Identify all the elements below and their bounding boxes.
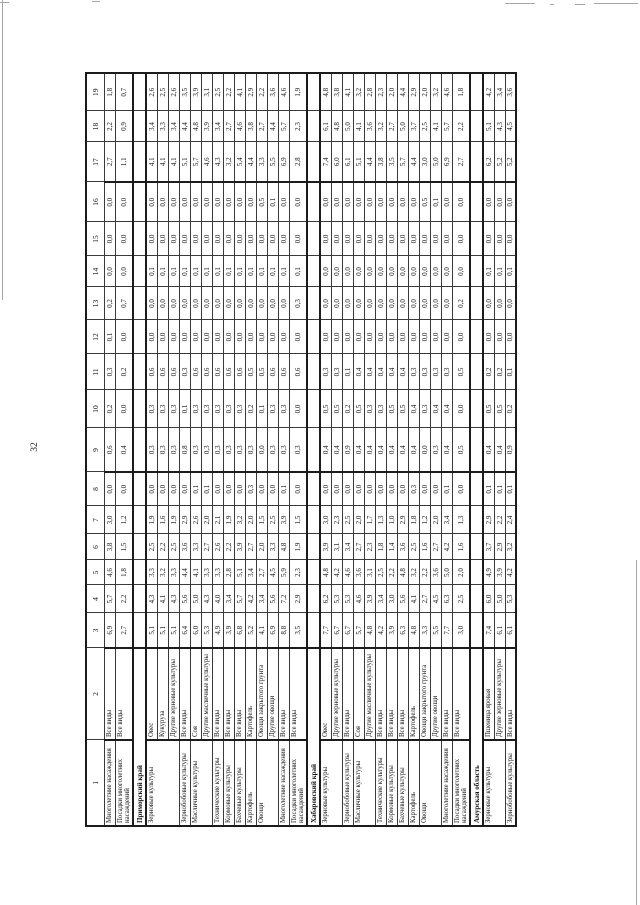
value-cell: 0,1 (342, 354, 353, 390)
value-cell: 3,0 (419, 142, 430, 182)
subcategory-label-cell: Все виды (115, 648, 133, 740)
value-cell: 0,0 (115, 256, 133, 287)
empty-value-cell (470, 320, 483, 354)
value-cell: 0,0 (201, 287, 212, 320)
value-cell: 0,6 (168, 354, 179, 390)
value-cell: 0,0 (419, 256, 430, 287)
value-cell: 1,5 (256, 506, 267, 534)
empty-value-cell (307, 390, 320, 428)
table-row: Другие зерновые культуры5,14,33,32,51,90… (168, 73, 179, 826)
statistics-table: 12345678910111213141516171819 Многолетни… (85, 72, 517, 827)
value-cell: 0,1 (157, 256, 168, 287)
category-label-cell: Бахчевые культуры (234, 740, 245, 826)
value-cell: 0,4 (408, 390, 419, 428)
value-cell: 4,2 (483, 73, 494, 111)
value-cell: 0,0 (494, 222, 505, 256)
value-cell: 5,7 (441, 111, 452, 142)
value-cell: 6,9 (267, 613, 278, 648)
table-row: Многолетние насажденияВсе виды8,87,25,94… (278, 73, 289, 826)
value-cell: 2,7 (115, 613, 133, 648)
table-row: Другие овощи5,54,53,62,72,00,00,30,40,30… (430, 73, 441, 826)
value-cell: 0,0 (353, 256, 364, 287)
value-cell: 0,3 (419, 354, 430, 390)
value-cell: 0,3 (331, 354, 342, 390)
value-cell: 3,8 (104, 534, 115, 560)
value-cell: 0,1 (289, 256, 307, 287)
value-cell: 1,8 (104, 73, 115, 111)
empty-value-cell (470, 472, 483, 506)
table-row: Зерновые культурыОвес5,14,33,32,51,90,00… (146, 73, 157, 826)
value-cell: 2,2 (256, 73, 267, 111)
value-cell: 4,3 (201, 585, 212, 613)
value-cell: 3,2 (375, 111, 386, 142)
value-cell: 4,6 (104, 560, 115, 585)
value-cell: 0,0 (289, 320, 307, 354)
value-cell: 2,2 (494, 506, 505, 534)
value-cell: 0,0 (179, 320, 190, 354)
value-cell: 0,0 (223, 320, 234, 354)
value-cell: 2,9 (397, 506, 408, 534)
value-cell: 2,7 (452, 142, 470, 182)
value-cell: 3,5 (289, 613, 307, 648)
value-cell: 0,5 (353, 390, 364, 428)
empty-value-cell (133, 222, 146, 256)
value-cell: 2,7 (419, 585, 430, 613)
value-cell: 0,4 (494, 428, 505, 472)
value-cell: 5,3 (331, 585, 342, 613)
value-cell: 0,0 (397, 287, 408, 320)
value-cell: 0,0 (256, 222, 267, 256)
value-cell: 0,9 (505, 428, 516, 472)
value-cell: 4,1 (157, 142, 168, 182)
value-cell: 0,0 (201, 222, 212, 256)
value-cell: 4,1 (190, 560, 201, 585)
value-cell: 0,3 (104, 354, 115, 390)
value-cell: 0,4 (353, 428, 364, 472)
value-cell: 3,0 (386, 585, 397, 613)
table-row: Бахчевые культурыВсе виды6,85,75,13,93,2… (234, 73, 245, 826)
value-cell: 1,9 (146, 506, 157, 534)
value-cell: 0,0 (256, 428, 267, 472)
empty-value-cell (307, 222, 320, 256)
value-cell: 0,0 (419, 428, 430, 472)
value-cell: 4,1 (234, 73, 245, 111)
scan-artifact-line (636, 560, 637, 905)
value-cell: 0,2 (505, 390, 516, 428)
value-cell: 0,1 (267, 182, 278, 222)
value-cell: 0,4 (441, 428, 452, 472)
value-cell: 1,8 (115, 560, 133, 585)
value-cell: 6,9 (104, 613, 115, 648)
value-cell: 4,8 (331, 111, 342, 142)
value-cell: 0,1 (201, 472, 212, 506)
empty-value-cell (133, 142, 146, 182)
value-cell: 0,0 (245, 182, 256, 222)
value-cell: 3,3 (212, 560, 223, 585)
value-cell: 2,7 (245, 534, 256, 560)
value-cell: 6,8 (234, 613, 245, 648)
value-cell: 4,8 (397, 560, 408, 585)
value-cell: 2,3 (289, 560, 307, 585)
value-cell: 0,0 (494, 287, 505, 320)
value-cell: 0,2 (104, 390, 115, 428)
value-cell: 0,3 (408, 354, 419, 390)
value-cell: 5,6 (267, 585, 278, 613)
subcategory-label-cell: Овес (320, 648, 331, 740)
value-cell: 2,3 (364, 534, 375, 560)
value-cell: 6,4 (179, 613, 190, 648)
value-cell: 0,3 (146, 428, 157, 472)
value-cell: 2,7 (430, 534, 441, 560)
value-cell: 1,8 (452, 73, 470, 111)
column-number-header: 5 (86, 560, 104, 585)
value-cell: 0,0 (320, 287, 331, 320)
value-cell: 3,7 (408, 111, 419, 142)
value-cell: 0,0 (441, 320, 452, 354)
table-row: Посадки многолетних насажденийВсе виды3,… (289, 73, 307, 826)
value-cell: 0,6 (201, 354, 212, 390)
value-cell: 5,2 (505, 142, 516, 182)
subcategory-label-cell: Овощи закрытого грунта (419, 648, 430, 740)
value-cell: 2,6 (212, 534, 223, 560)
empty-value-cell (307, 560, 320, 585)
empty-value-cell (470, 585, 483, 613)
value-cell: 4,1 (146, 142, 157, 182)
column-number-header: 7 (86, 506, 104, 534)
value-cell: 5,2 (245, 613, 256, 648)
value-cell: 0,0 (256, 320, 267, 354)
value-cell: 0,4 (364, 354, 375, 390)
category-label-cell: Многолетние насаждения (441, 740, 452, 826)
region-section-label: Хабаровский край (307, 648, 320, 826)
value-cell: 4,1 (408, 585, 419, 613)
empty-value-cell (133, 585, 146, 613)
value-cell: 2,4 (505, 506, 516, 534)
category-label-cell: Масличные культуры (190, 740, 212, 826)
region-section-label: Амурская область (470, 648, 483, 826)
value-cell: 6,2 (483, 142, 494, 182)
column-number-header: 13 (86, 287, 104, 320)
value-cell: 1,7 (364, 506, 375, 534)
column-number-header-row: 12345678910111213141516171819 (86, 73, 104, 826)
value-cell: 0,0 (267, 287, 278, 320)
value-cell: 0,0 (146, 182, 157, 222)
value-cell: 0,4 (386, 354, 397, 390)
table-row: КартофельКартофель4,84,13,22,51,80,30,40… (408, 73, 419, 826)
value-cell: 3,2 (157, 560, 168, 585)
value-cell: 0,5 (245, 354, 256, 390)
value-cell: 0,5 (452, 428, 470, 472)
value-cell: 0,3 (320, 354, 331, 390)
value-cell: 2,5 (212, 73, 223, 111)
value-cell: 0,3 (234, 428, 245, 472)
value-cell: 3,9 (278, 506, 289, 534)
value-cell: 0,0 (234, 472, 245, 506)
value-cell: 0,2 (115, 354, 133, 390)
empty-value-cell (307, 354, 320, 390)
value-cell: 0,0 (168, 287, 179, 320)
value-cell: 0,3 (289, 428, 307, 472)
value-cell: 2,7 (256, 560, 267, 585)
empty-value-cell (133, 320, 146, 354)
empty-value-cell (470, 256, 483, 287)
empty-value-cell (470, 390, 483, 428)
value-cell: 0,0 (331, 320, 342, 354)
value-cell: 3,8 (331, 73, 342, 111)
value-cell: 0,0 (375, 182, 386, 222)
section-row: Приморский край (133, 73, 146, 826)
value-cell: 4,6 (234, 111, 245, 142)
value-cell: 0,3 (278, 390, 289, 428)
table-row: Другие овощи6,95,64,53,32,50,00,30,30,60… (267, 73, 278, 826)
value-cell: 2,3 (289, 111, 307, 142)
value-cell: 0,0 (331, 256, 342, 287)
empty-value-cell (470, 287, 483, 320)
table-row: Зерновые культурыОвес7,76,24,83,93,00,00… (320, 73, 331, 826)
section-row: Амурская область (470, 73, 483, 826)
empty-value-cell (307, 320, 320, 354)
value-cell: 0,3 (245, 472, 256, 506)
value-cell: 0,0 (353, 320, 364, 354)
value-cell: 0,0 (419, 222, 430, 256)
value-cell: 6,0 (190, 613, 201, 648)
value-cell: 0,0 (115, 182, 133, 222)
value-cell: 0,0 (289, 390, 307, 428)
value-cell: 0,3 (179, 354, 190, 390)
table-row: Зерновые культурыПшеница яровая7,46,04,9… (483, 73, 494, 826)
value-cell: 0,0 (375, 472, 386, 506)
value-cell: 4,4 (245, 142, 256, 182)
value-cell: 0,0 (245, 320, 256, 354)
category-label-cell: Масличные культуры (353, 740, 375, 826)
value-cell: 5,0 (397, 111, 408, 142)
empty-value-cell (133, 506, 146, 534)
value-cell: 2,5 (168, 534, 179, 560)
value-cell: 0,0 (212, 287, 223, 320)
value-cell: 0,0 (234, 182, 245, 222)
value-cell: 5,0 (190, 585, 201, 613)
value-cell: 0,4 (353, 354, 364, 390)
empty-value-cell (133, 390, 146, 428)
value-cell: 3,8 (245, 111, 256, 142)
value-cell: 0,0 (386, 182, 397, 222)
empty-value-cell (470, 428, 483, 472)
scan-artifact-line (505, 3, 535, 4)
table-row: Кормовые культурыВсе виды3,93,02,21,41,0… (386, 73, 397, 826)
value-cell: 0,0 (364, 287, 375, 320)
empty-value-cell (133, 472, 146, 506)
table-row: Кормовые культурыВсе виды3,93,42,82,21,9… (223, 73, 234, 826)
value-cell: 0,0 (234, 222, 245, 256)
empty-value-cell (133, 287, 146, 320)
value-cell: 0,0 (419, 287, 430, 320)
value-cell: 6,1 (320, 111, 331, 142)
value-cell: 0,1 (146, 256, 157, 287)
value-cell: 0,3 (223, 390, 234, 428)
value-cell: 0,0 (212, 472, 223, 506)
scan-artifact-line (550, 4, 554, 5)
value-cell: 3,4 (146, 111, 157, 142)
value-cell: 0,0 (505, 287, 516, 320)
value-cell: 0,1 (505, 354, 516, 390)
subcategory-label-cell: Все виды (342, 648, 353, 740)
value-cell: 0,0 (331, 182, 342, 222)
table-row: Зернобобовые культурыВсе виды6,15,34,23,… (505, 73, 516, 826)
column-number-header: 14 (86, 256, 104, 287)
value-cell: 0,0 (245, 287, 256, 320)
value-cell: 0,0 (342, 287, 353, 320)
subcategory-label-cell: Пшеница яровая (483, 648, 494, 740)
value-cell: 0,9 (115, 111, 133, 142)
column-number-header: 1 (86, 740, 104, 826)
value-cell: 0,0 (289, 222, 307, 256)
value-cell: 3,6 (267, 73, 278, 111)
value-cell: 0,2 (342, 390, 353, 428)
empty-value-cell (470, 182, 483, 222)
value-cell: 4,1 (342, 73, 353, 111)
value-cell: 0,0 (386, 472, 397, 506)
value-cell: 0,0 (201, 320, 212, 354)
value-cell: 5,4 (234, 142, 245, 182)
subcategory-label-cell: Кукуруза (157, 648, 168, 740)
value-cell: 0,0 (386, 222, 397, 256)
value-cell: 0,0 (483, 182, 494, 222)
value-cell: 0,3 (267, 390, 278, 428)
subcategory-label-cell: Другие зерновые культуры (494, 648, 505, 740)
value-cell: 0,4 (320, 428, 331, 472)
value-cell: 7,4 (320, 142, 331, 182)
document-page: 32 12345678910111213141516171819 Многоле… (0, 0, 640, 905)
value-cell: 3,9 (386, 613, 397, 648)
value-cell: 0,4 (386, 428, 397, 472)
value-cell: 0,0 (168, 182, 179, 222)
value-cell: 0,0 (278, 320, 289, 354)
value-cell: 3,3 (157, 111, 168, 142)
value-cell: 4,8 (320, 560, 331, 585)
value-cell: 0,4 (441, 390, 452, 428)
empty-value-cell (470, 111, 483, 142)
value-cell: 2,9 (408, 73, 419, 111)
subcategory-label-cell: Все виды (441, 648, 452, 740)
value-cell: 0,0 (146, 287, 157, 320)
value-cell: 3,3 (190, 534, 201, 560)
value-cell: 0,1 (494, 256, 505, 287)
value-cell: 0,0 (408, 287, 419, 320)
value-cell: 0,0 (375, 287, 386, 320)
empty-value-cell (470, 222, 483, 256)
empty-value-cell (307, 142, 320, 182)
value-cell: 3,3 (146, 560, 157, 585)
scan-artifact-line (92, 1, 100, 2)
value-cell: 0,0 (364, 222, 375, 256)
value-cell: 3,4 (212, 111, 223, 142)
value-cell: 2,5 (157, 73, 168, 111)
value-cell: 0,0 (386, 256, 397, 287)
column-number-header: 10 (86, 390, 104, 428)
value-cell: 0,0 (190, 287, 201, 320)
value-cell: 4,3 (168, 585, 179, 613)
value-cell: 0,0 (353, 472, 364, 506)
value-cell: 3,4 (494, 73, 505, 111)
value-cell: 0,2 (104, 287, 115, 320)
value-cell: 0,3 (212, 428, 223, 472)
value-cell: 0,0 (146, 320, 157, 354)
value-cell: 0,0 (157, 320, 168, 354)
value-cell: 0,5 (494, 390, 505, 428)
column-number-header: 6 (86, 534, 104, 560)
value-cell: 0,0 (168, 222, 179, 256)
value-cell: 0,6 (104, 428, 115, 472)
value-cell: 4,2 (375, 613, 386, 648)
empty-value-cell (307, 287, 320, 320)
value-cell: 0,0 (441, 287, 452, 320)
value-cell: 0,0 (430, 222, 441, 256)
value-cell: 3,1 (364, 560, 375, 585)
value-cell: 2,6 (190, 506, 201, 534)
value-cell: 1,9 (289, 73, 307, 111)
value-cell: 2,2 (115, 585, 133, 613)
value-cell: 2,2 (104, 111, 115, 142)
value-cell: 0,4 (397, 354, 408, 390)
value-cell: 0,4 (115, 428, 133, 472)
value-cell: 0,0 (320, 256, 331, 287)
value-cell: 5,7 (104, 585, 115, 613)
value-cell: 4,9 (483, 560, 494, 585)
subcategory-label-cell: Все виды (386, 648, 397, 740)
value-cell: 5,7 (397, 142, 408, 182)
value-cell: 0,1 (278, 472, 289, 506)
value-cell: 0,6 (234, 354, 245, 390)
value-cell: 4,1 (157, 585, 168, 613)
value-cell: 0,1 (483, 256, 494, 287)
value-cell: 1,3 (452, 506, 470, 534)
empty-value-cell (470, 73, 483, 111)
value-cell: 0,1 (104, 320, 115, 354)
value-cell: 5,1 (168, 613, 179, 648)
empty-value-cell (307, 182, 320, 222)
value-cell: 3,2 (234, 506, 245, 534)
value-cell: 0,0 (505, 182, 516, 222)
table-row: Масличные культурыСоя5,74,63,62,72,00,00… (353, 73, 364, 826)
value-cell: 0,5 (386, 390, 397, 428)
subcategory-label-cell: Овес (146, 648, 157, 740)
subcategory-label-cell: Все виды (278, 648, 289, 740)
value-cell: 3,3 (168, 560, 179, 585)
value-cell: 0,0 (278, 287, 289, 320)
value-cell: 8,8 (278, 613, 289, 648)
value-cell: 6,7 (342, 613, 353, 648)
value-cell: 0,0 (397, 320, 408, 354)
value-cell: 3,9 (364, 585, 375, 613)
value-cell: 0,5 (256, 182, 267, 222)
value-cell: 0,0 (104, 182, 115, 222)
value-cell: 0,1 (201, 256, 212, 287)
category-label-cell: Технические культуры (212, 740, 223, 826)
empty-value-cell (470, 613, 483, 648)
value-cell: 0,0 (115, 222, 133, 256)
value-cell: 0,0 (267, 222, 278, 256)
value-cell: 0,0 (397, 182, 408, 222)
value-cell: 3,9 (494, 560, 505, 585)
value-cell: 2,5 (375, 560, 386, 585)
value-cell: 6,9 (441, 142, 452, 182)
value-cell: 5,7 (234, 585, 245, 613)
empty-value-cell (470, 534, 483, 560)
value-cell: 2,1 (212, 506, 223, 534)
value-cell: 2,2 (223, 73, 234, 111)
value-cell: 0,3 (223, 428, 234, 472)
category-label-cell: Картофель (245, 740, 256, 826)
